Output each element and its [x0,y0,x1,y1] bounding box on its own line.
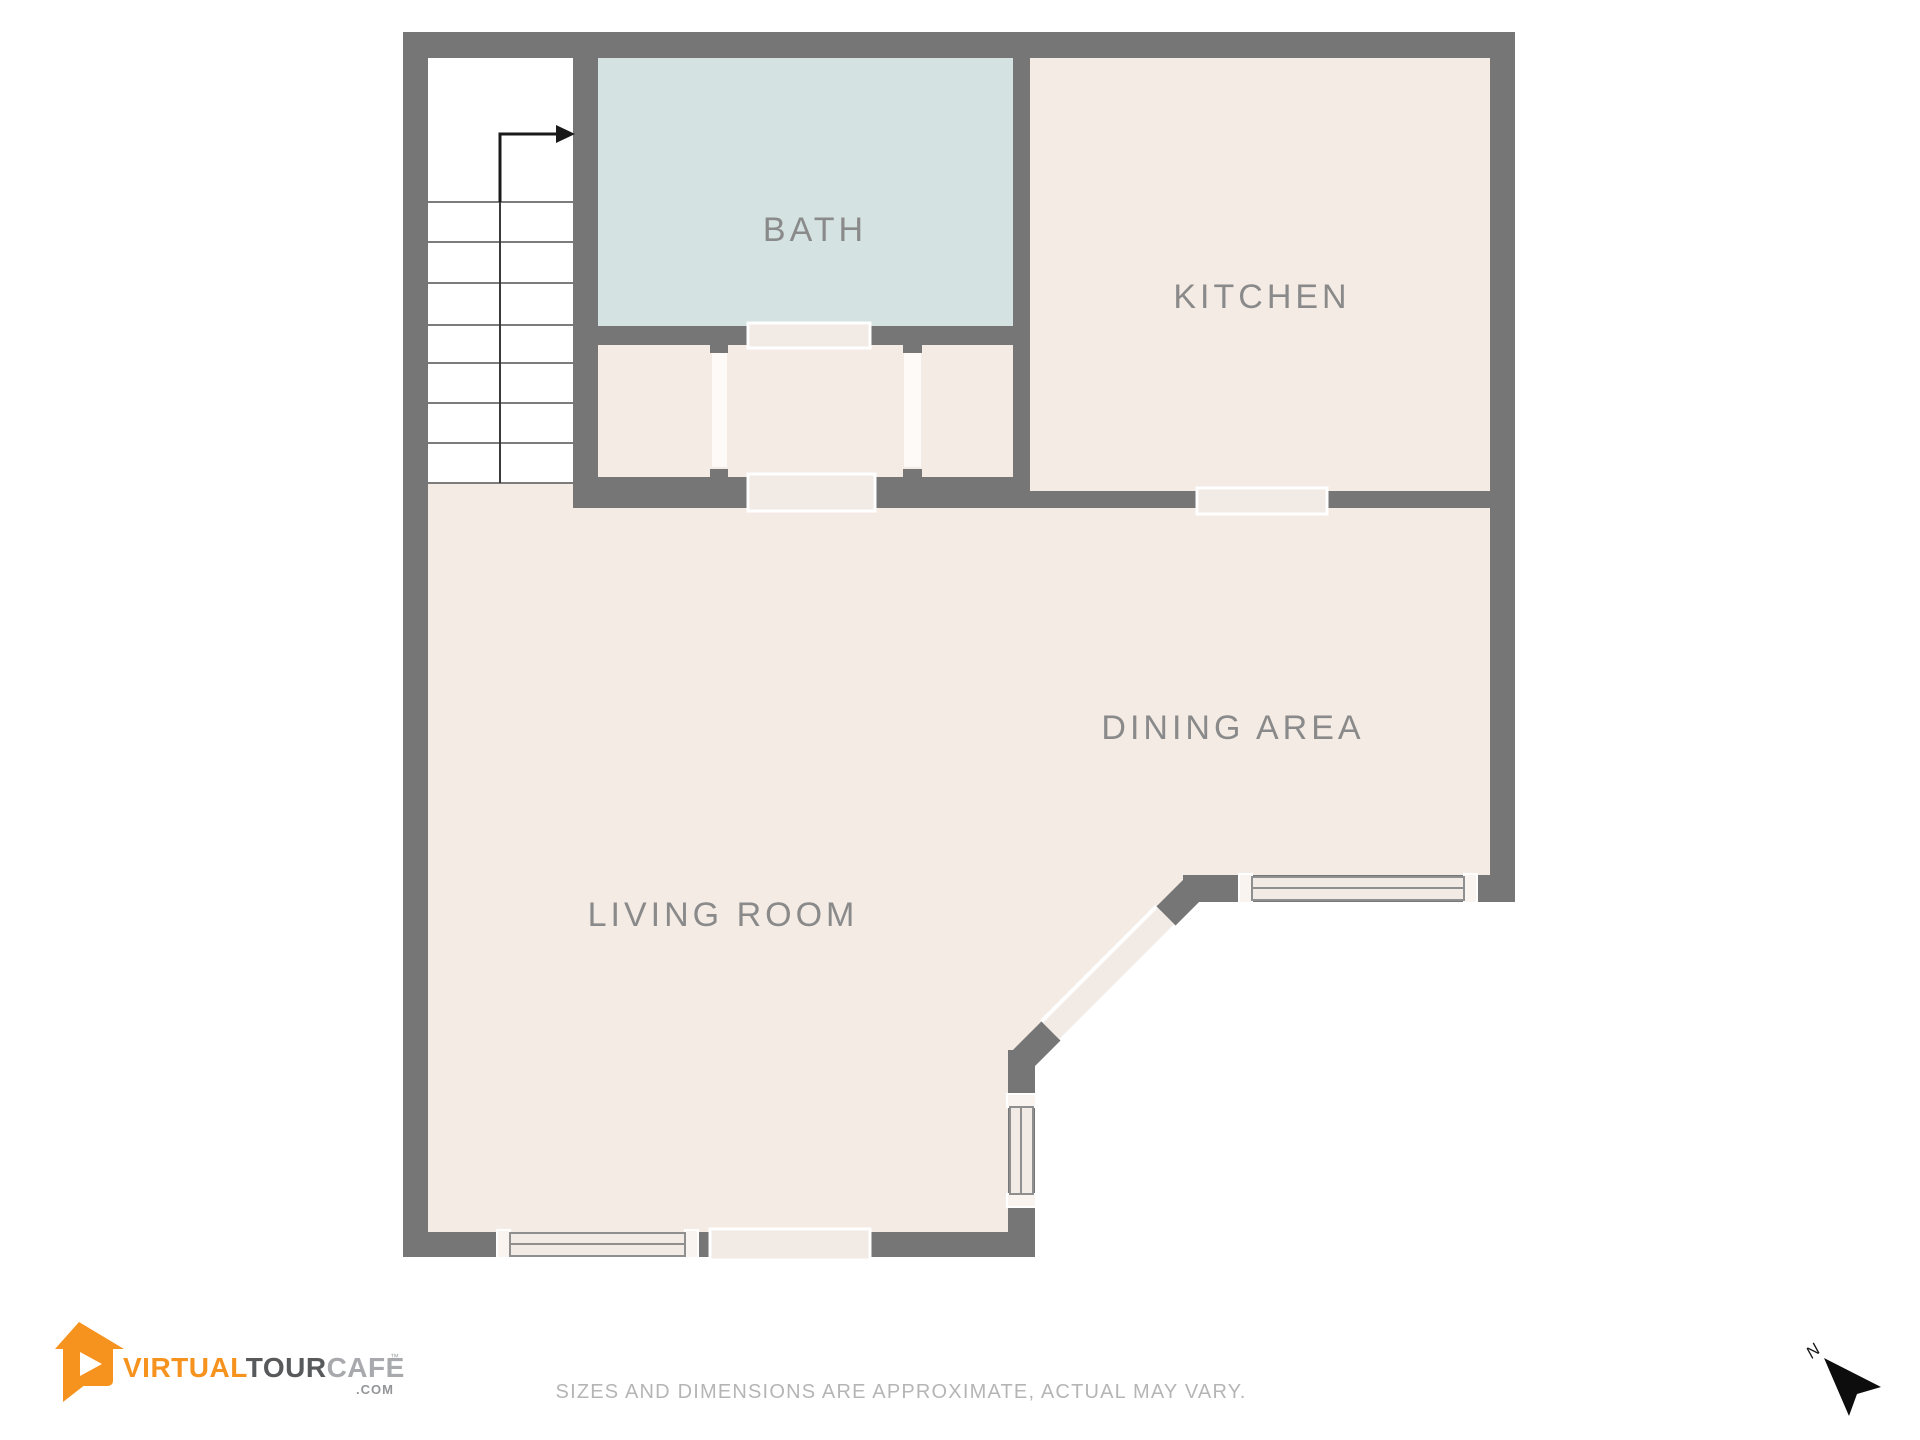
bay-side-window [1007,1094,1036,1207]
living-bottom-window [497,1230,698,1258]
wall-outer-top [403,32,1515,58]
hall-cased-opening [748,474,875,511]
wall-stub-hall-right-top [903,345,922,353]
floor-plan-canvas: BATH KITCHEN DINING AREA LIVING ROOM VIR… [0,0,1920,1440]
dining-area-label: DINING AREA [1101,709,1364,747]
wall-bath-kitchen [1013,32,1030,508]
bath-floor [573,58,1030,345]
floor-plan-page: BATH KITCHEN DINING AREA LIVING ROOM VIR… [0,0,1920,1440]
wall-stub-hall-right-bottom [903,469,922,477]
hall-door-gap-left [712,353,727,467]
logo-wordmark: VIRTUALTOURCAFE [123,1352,405,1383]
dining-bottom-window [1239,874,1477,903]
disclaimer: SIZES AND DIMENSIONS ARE APPROXIMATE, AC… [556,1381,1247,1403]
wall-outer-right [1490,32,1515,902]
logo-trademark: ™ [390,1352,399,1362]
logo-domain-suffix: .COM [356,1382,394,1397]
kitchen-cased-opening [1197,488,1327,514]
hall-door-gap-right [904,353,921,467]
wall-stub-hall-left-top [710,345,728,353]
living-entry-opening [710,1229,870,1260]
wall-outer-left [403,32,428,1257]
bath-door-opening [748,323,870,348]
bath-label: BATH [763,211,867,249]
logo-word-tour: TOUR [246,1352,327,1383]
wall-stair-right [573,32,598,507]
living-room-label: LIVING ROOM [588,896,859,934]
wall-stub-hall-left-bottom [710,469,728,477]
kitchen-label: KITCHEN [1173,278,1350,316]
logo-word-virtual: VIRTUAL [123,1352,247,1383]
